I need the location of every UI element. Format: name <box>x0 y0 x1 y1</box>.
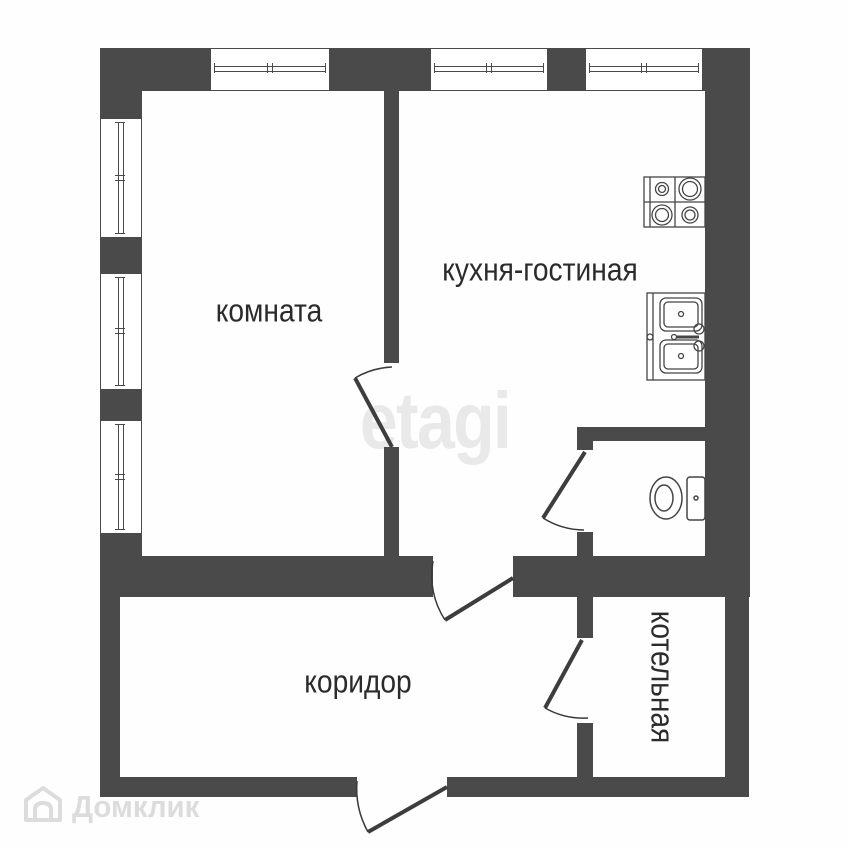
room-label-corridor: коридор <box>304 664 411 701</box>
boiler-door <box>545 640 588 718</box>
kitchen-door <box>432 561 513 620</box>
room-door <box>355 367 392 447</box>
bathroom-door <box>543 452 585 530</box>
toilet-icon <box>650 477 705 520</box>
stove-icon <box>644 177 705 227</box>
room-label-boiler: котельная <box>644 611 681 744</box>
sink-icon <box>647 293 705 380</box>
entrance-door <box>357 781 447 832</box>
room-label-komnata: комната <box>216 293 322 330</box>
floor-plan: etagi Домклик <box>0 0 848 848</box>
room-label-kitchen-living: кухня-гостиная <box>442 252 637 289</box>
